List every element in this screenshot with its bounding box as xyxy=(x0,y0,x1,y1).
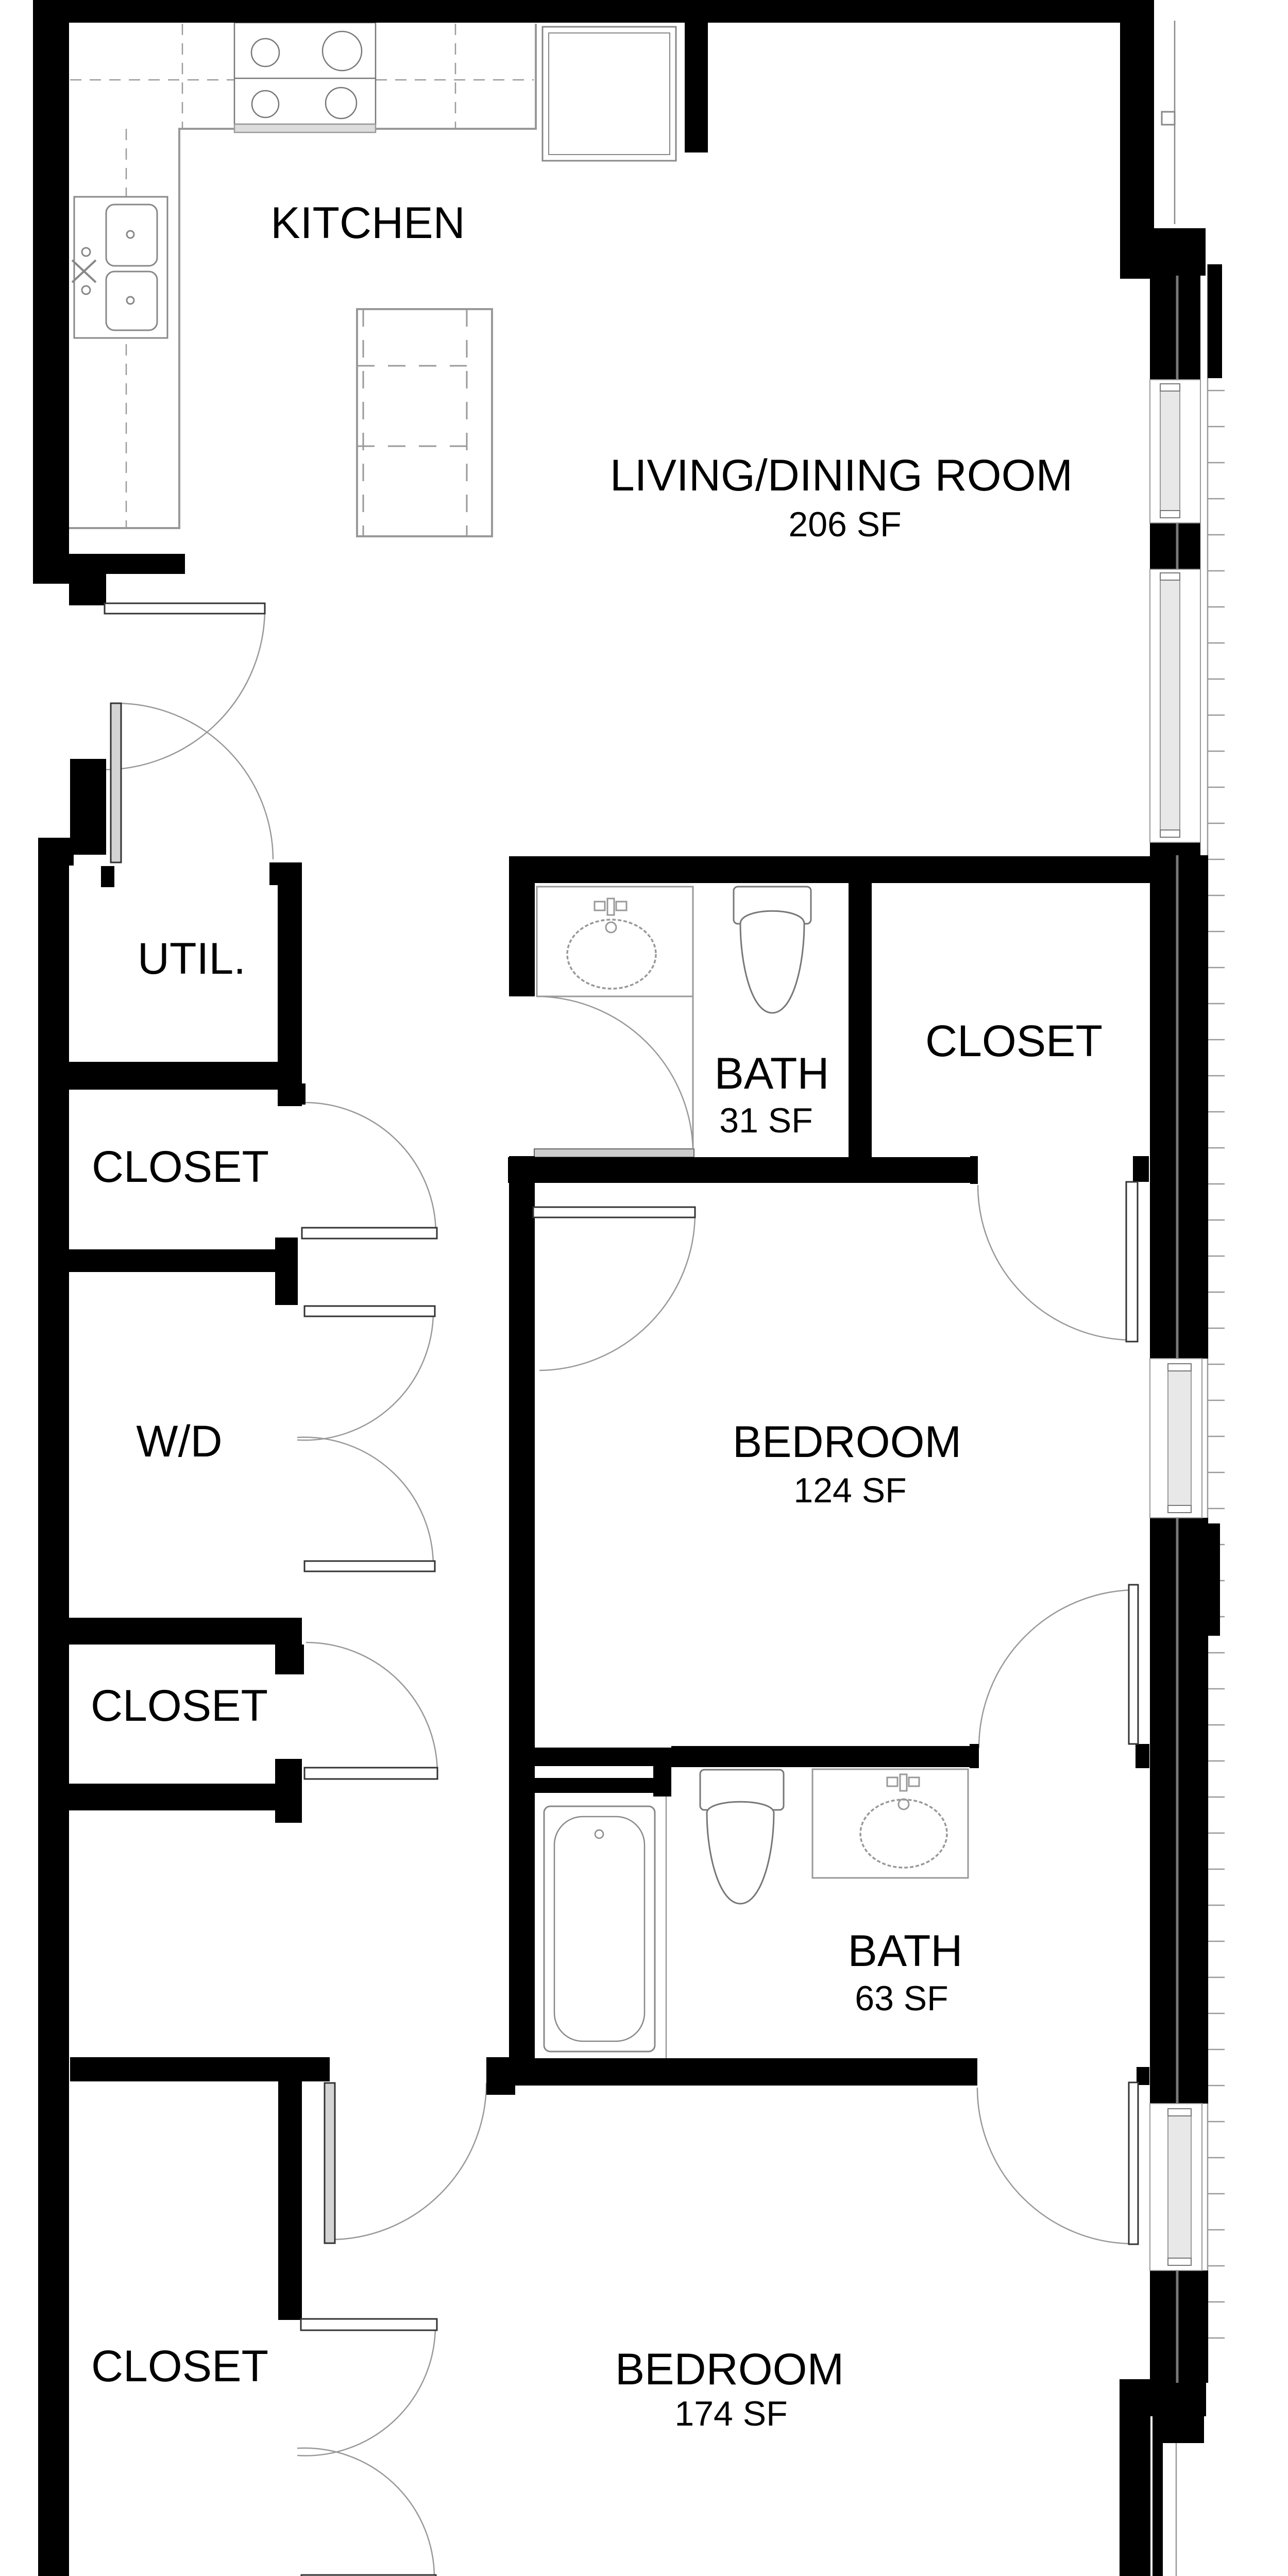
svg-text:CLOSET: CLOSET xyxy=(91,2342,268,2391)
svg-text:W/D: W/D xyxy=(136,1417,222,1466)
svg-text:206 SF: 206 SF xyxy=(788,505,901,544)
svg-text:CLOSET: CLOSET xyxy=(92,1142,269,1192)
svg-text:BATH: BATH xyxy=(715,1049,829,1098)
svg-text:CLOSET: CLOSET xyxy=(91,1681,268,1731)
svg-text:UTIL.: UTIL. xyxy=(138,934,246,984)
svg-text:BATH: BATH xyxy=(848,1926,963,1976)
svg-text:BEDROOM: BEDROOM xyxy=(733,1417,961,1467)
svg-text:31 SF: 31 SF xyxy=(719,1101,812,1140)
svg-text:CLOSET: CLOSET xyxy=(925,1016,1103,1066)
svg-text:BEDROOM: BEDROOM xyxy=(615,2345,844,2394)
svg-text:LIVING/DINING ROOM: LIVING/DINING ROOM xyxy=(610,451,1073,500)
svg-text:KITCHEN: KITCHEN xyxy=(270,198,465,248)
svg-text:63 SF: 63 SF xyxy=(855,1979,948,2018)
svg-text:124 SF: 124 SF xyxy=(793,1471,906,1510)
svg-text:174 SF: 174 SF xyxy=(674,2394,787,2433)
